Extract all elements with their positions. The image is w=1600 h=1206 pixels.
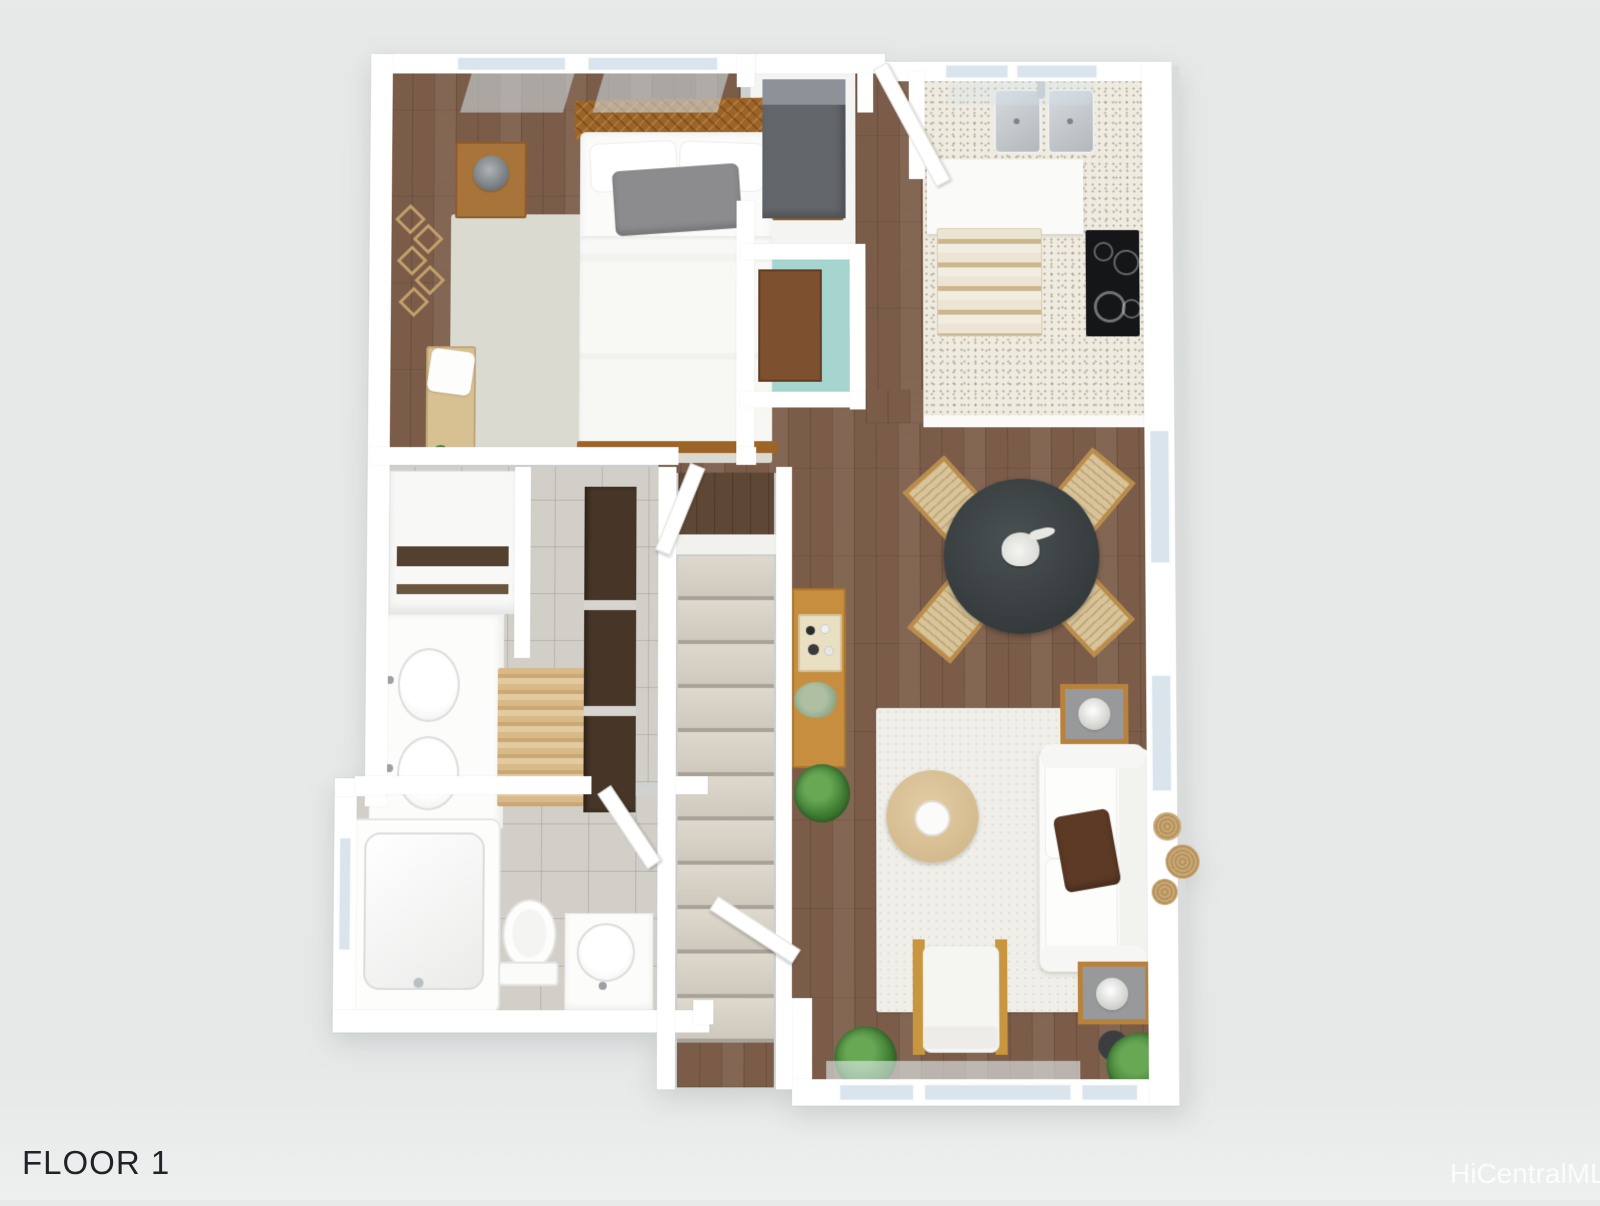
sofa-armrest <box>1040 744 1144 768</box>
vanity-sink <box>397 736 460 810</box>
wall-bedroom-closet <box>736 201 754 459</box>
window-living <box>1080 1083 1139 1101</box>
wardrobe-shelf <box>584 600 636 610</box>
bed-pillow-gray <box>612 163 743 236</box>
side-table-lamp <box>1096 978 1128 1010</box>
sofa-backrest <box>1119 752 1149 966</box>
wall-nook-right <box>850 244 866 410</box>
window-bathroom <box>337 836 352 951</box>
stair-nosing <box>676 534 776 554</box>
wall-top-closet <box>757 54 885 74</box>
console-bottle <box>808 644 819 655</box>
wall-nook-top <box>740 244 861 260</box>
wall-bath-bottom <box>333 1010 710 1032</box>
console-floor-plant <box>794 764 850 822</box>
stair-tread <box>678 556 774 600</box>
cooktop-burner <box>1093 242 1113 262</box>
bathtub-basin <box>363 832 485 989</box>
window-kitchen <box>1015 64 1098 80</box>
wall-bedroom-closet-post <box>737 54 755 87</box>
floor-label: FLOOR 1 <box>22 1144 170 1182</box>
window-bedroom <box>456 56 567 72</box>
wardrobe <box>583 487 636 813</box>
stair-tread <box>678 644 774 688</box>
wall-bath-divider-left <box>355 776 592 794</box>
wall-stair-right <box>776 467 792 1089</box>
console-eucalyptus <box>794 682 838 718</box>
bathroom2-sink <box>577 923 636 982</box>
accent-chair-footrest <box>923 1026 998 1048</box>
linen-closet-shelf <box>397 584 509 594</box>
window-right-lower <box>1150 674 1173 792</box>
cooktop-burner <box>1122 299 1142 319</box>
wall-entry-post <box>693 1000 713 1024</box>
sink-drain-right <box>1067 118 1073 124</box>
cooktop-burner <box>1113 250 1139 276</box>
stair-tread <box>677 954 774 999</box>
wardrobe-shelf <box>584 706 636 716</box>
watermark: HiCentralMLS <box>1450 1158 1600 1190</box>
vanity-sink <box>397 648 460 722</box>
window-bedroom <box>587 56 719 72</box>
kitchen-rug <box>937 228 1043 336</box>
stair-tread <box>678 688 774 732</box>
stair-lower-landing <box>677 1043 774 1088</box>
jute-wall-decor <box>1152 879 1178 905</box>
floor-plan <box>0 9 1600 1205</box>
wall-bedroom-bottom <box>370 447 679 465</box>
console-bottle <box>820 624 830 634</box>
jute-wall-decor <box>1153 812 1181 840</box>
wall-nook-bottom <box>740 392 865 408</box>
coffee-table-tray <box>914 800 950 836</box>
bathroom2-faucet <box>599 982 607 990</box>
wall-hall-closet <box>514 467 531 658</box>
console-tray <box>798 614 842 672</box>
kitchen-cabinet-front <box>927 159 1084 234</box>
stair-tread <box>678 732 774 776</box>
sink-drain-left <box>1014 118 1020 124</box>
accent-nook-door <box>758 269 822 381</box>
bathtub-faucet <box>413 978 423 988</box>
window-glare-bedroom <box>593 73 729 112</box>
stair-tread <box>678 600 774 644</box>
toilet-tank <box>498 962 559 986</box>
kitchen-peninsula-base <box>923 415 1148 427</box>
wall-closet-stub <box>857 73 873 112</box>
console-bottle <box>806 626 815 635</box>
window-living <box>923 1083 1072 1101</box>
bench-pillow <box>426 347 476 396</box>
wall-stair-left <box>657 467 677 1089</box>
floorplan-screenshot: { "labels": { "floor_label": "FLOOR 1", … <box>0 0 1600 1200</box>
window-glare-bedroom <box>460 73 574 112</box>
table-lamp-left <box>473 156 509 191</box>
window-kitchen <box>944 64 1009 80</box>
linen-closet-shelf <box>397 546 509 566</box>
window-sill-living <box>826 1061 1080 1079</box>
window-glare-kitchen <box>946 81 1095 104</box>
toilet-seat <box>512 909 546 957</box>
stair-tread <box>677 820 773 864</box>
jute-wall-decor <box>1165 845 1199 879</box>
wall-bath-divider-right <box>676 776 708 794</box>
side-table-lamp <box>1078 698 1110 730</box>
window-living <box>838 1083 915 1101</box>
window-right-upper <box>1148 429 1171 564</box>
console-bottle <box>824 646 834 656</box>
wall-bedroom-bottom-stub <box>736 447 756 465</box>
washer-appliance-top <box>762 79 845 104</box>
